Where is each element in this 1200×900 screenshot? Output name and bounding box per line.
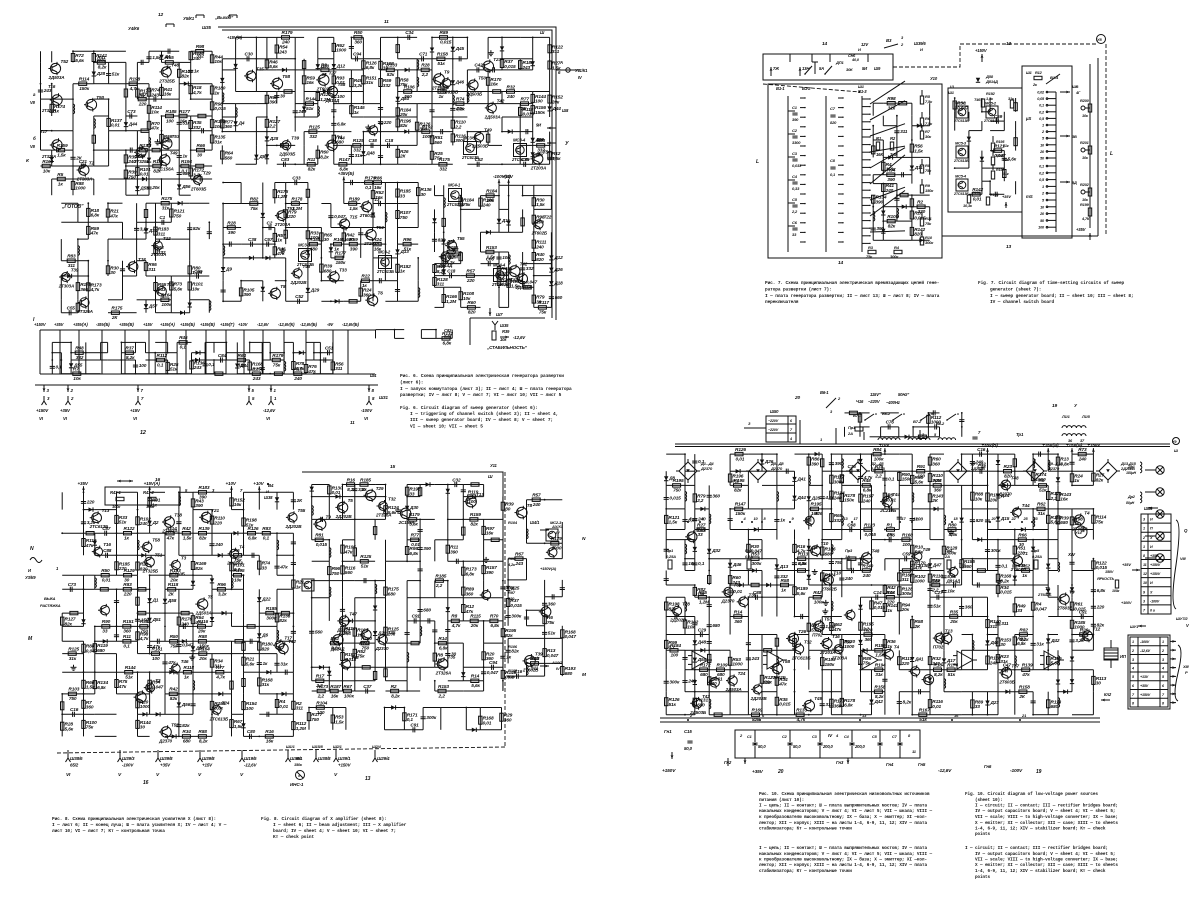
svg-text:R35: R35 — [950, 609, 959, 615]
svg-text:4,7к: 4,7к — [215, 675, 225, 681]
svg-text:2Т602Б: 2Т602Б — [1037, 592, 1052, 597]
svg-text:33: 33 — [698, 532, 704, 538]
svg-text:75к: 75к — [463, 202, 471, 208]
svg-text:6,8к: 6,8к — [490, 623, 499, 629]
svg-text:2,2: 2,2 — [438, 693, 446, 699]
svg-text:680: 680 — [717, 672, 725, 678]
svg-text:2А: 2А — [847, 431, 853, 436]
svg-text:1к: 1к — [58, 181, 64, 187]
svg-text:R184: R184 — [486, 188, 497, 194]
svg-text:51к: 51к — [1039, 488, 1047, 494]
svg-text:C30: C30 — [245, 52, 254, 57]
svg-text:R118: R118 — [168, 582, 179, 588]
svg-text:14: 14 — [822, 41, 828, 47]
svg-text:2Д202В: 2Д202В — [290, 280, 308, 285]
svg-text:Т22: Т22 — [544, 215, 552, 220]
svg-text:0,01: 0,01 — [102, 578, 111, 584]
svg-text:МС3-3: МС3-3 — [463, 136, 476, 141]
svg-text:100: 100 — [902, 542, 910, 548]
svg-text:51к: 51к — [933, 603, 941, 609]
svg-text:R55: R55 — [165, 55, 174, 61]
svg-text:2Д503Б: 2Д503Б — [465, 91, 483, 96]
svg-text:51к: 51к — [306, 106, 314, 112]
svg-text:C21: C21 — [79, 159, 88, 164]
svg-text:30: 30 — [421, 192, 427, 198]
svg-text:R194: R194 — [875, 663, 886, 669]
svg-text:R195: R195 — [734, 478, 745, 484]
svg-text:1к: 1к — [1074, 478, 1080, 484]
svg-text:0,015: 0,015 — [214, 106, 226, 112]
svg-text:1,5к: 1,5к — [552, 156, 561, 162]
svg-text:-100V: -100V — [1010, 768, 1023, 774]
svg-text:4: 4 — [789, 437, 792, 441]
svg-text:1,2М: 1,2М — [446, 299, 457, 305]
svg-text:R16: R16 — [294, 367, 303, 373]
svg-text:Т48: Т48 — [1011, 475, 1019, 480]
svg-text:0,1: 0,1 — [180, 345, 187, 351]
svg-text:50,0: 50,0 — [684, 746, 693, 751]
svg-text:Ш1: Ш1 — [1026, 70, 1032, 75]
svg-text:2Д503А: 2Д503А — [48, 75, 65, 80]
svg-text:40,0: 40,0 — [851, 58, 860, 62]
svg-text:100: 100 — [671, 653, 679, 659]
svg-text:10к: 10к — [43, 168, 51, 174]
svg-text:Т50: Т50 — [478, 75, 486, 80]
svg-text:240: 240 — [506, 94, 515, 100]
svg-text:R9: R9 — [321, 63, 327, 69]
svg-text:82к: 82к — [387, 72, 395, 78]
svg-text:+35V: +35V — [160, 763, 171, 768]
svg-text:C76: C76 — [886, 420, 895, 425]
svg-text:2Т603Б: 2Т603Б — [316, 86, 333, 91]
svg-text:ШУ1: ШУ1 — [1130, 624, 1138, 629]
svg-text:5,6к: 5,6к — [269, 64, 278, 70]
svg-text:332: 332 — [834, 518, 842, 524]
svg-text:Ш1/1: Ш1/1 — [286, 744, 295, 749]
svg-text:Др1: Др1 — [1127, 465, 1135, 469]
svg-text:I — лист 6; II — конец луча; Ш: I — лист 6; II — конец луча; Ш — плата у… — [52, 822, 227, 828]
svg-text:Ш39/1: Ш39/1 — [338, 756, 351, 761]
svg-text:2Д202В: 2Д202В — [335, 514, 353, 519]
svg-text:R160: R160 — [902, 532, 913, 538]
svg-text:Ш35: Ш35 — [202, 25, 211, 30]
svg-text:4: 4 — [1161, 667, 1164, 671]
svg-text:R32: R32 — [507, 84, 516, 90]
svg-text:R83: R83 — [933, 478, 942, 484]
svg-text:R59: R59 — [349, 237, 358, 243]
svg-text:R6: R6 — [1039, 478, 1045, 484]
svg-text:R42: R42 — [182, 526, 191, 532]
svg-text:C52: C52 — [295, 294, 304, 299]
svg-text:Т53: Т53 — [172, 134, 180, 139]
svg-text:16к: 16к — [266, 739, 274, 745]
svg-text:1000: 1000 — [140, 704, 151, 710]
svg-text:generator (sheet 7):: generator (sheet 7): — [990, 286, 1041, 292]
svg-text:51к: 51к — [112, 72, 120, 78]
svg-text:C91: C91 — [1079, 609, 1088, 614]
svg-text:R34: R34 — [182, 729, 191, 735]
svg-text:360: 360 — [934, 488, 942, 494]
svg-text:50Hz”: 50Hz” — [898, 392, 910, 397]
svg-text:2С156А: 2С156А — [226, 560, 243, 565]
svg-text:Д46: Д46 — [732, 562, 742, 567]
svg-text:R67: R67 — [515, 551, 524, 557]
svg-text:R125: R125 — [360, 554, 371, 560]
svg-text:R201: R201 — [1080, 140, 1089, 145]
svg-text:8,2к: 8,2к — [875, 694, 884, 700]
svg-text:10к: 10к — [947, 589, 955, 595]
svg-text:Д2370: Д2370 — [336, 627, 350, 632]
svg-text:180µН: 180µН — [1126, 471, 1136, 475]
svg-text:Т32: Т32 — [804, 639, 812, 644]
svg-text:R165: R165 — [334, 237, 345, 243]
svg-text:300к: 300к — [511, 614, 522, 620]
svg-text:16к: 16к — [1060, 497, 1068, 503]
svg-text:I — цепь; II — контакт; Ш — пл: I — цепь; II — контакт; Ш — плата выпрям… — [759, 846, 927, 851]
svg-text:Ш39/8: Ш39/8 — [160, 756, 173, 761]
svg-text:1к: 1к — [362, 283, 368, 289]
svg-text:0,02: 0,02 — [1037, 91, 1045, 95]
svg-text:ВЫКА: ВЫКА — [44, 596, 56, 601]
svg-text:1000: 1000 — [732, 662, 743, 668]
svg-text:R147: R147 — [339, 157, 350, 163]
svg-text:220: 220 — [123, 592, 132, 598]
svg-text:1,5к: 1,5к — [335, 719, 344, 725]
svg-text:IV: IV — [556, 530, 560, 535]
svg-text:82к: 82к — [734, 488, 742, 494]
svg-text:C37: C37 — [363, 684, 372, 689]
svg-text:Т39: Т39 — [71, 268, 79, 273]
svg-text:R133: R133 — [796, 708, 807, 714]
svg-text:Т2: Т2 — [89, 161, 95, 166]
svg-text:R14: R14 — [438, 636, 447, 642]
svg-text:2Т326А: 2Т326А — [375, 513, 391, 518]
svg-text:С82: С82 — [444, 328, 452, 333]
svg-text:C14: C14 — [873, 590, 882, 595]
svg-text:Д6: Д6 — [261, 633, 268, 638]
svg-text:47к: 47к — [167, 660, 176, 666]
svg-text:390: 390 — [811, 461, 819, 467]
svg-text:Ш50: Ш50 — [770, 409, 779, 414]
svg-text:Т29: Т29 — [203, 170, 211, 175]
svg-text:Т12: Т12 — [163, 236, 171, 241]
svg-text:20: 20 — [794, 395, 801, 401]
svg-text:R83: R83 — [67, 254, 76, 260]
svg-text:Т8: Т8 — [527, 503, 533, 508]
svg-text:30: 30 — [361, 487, 367, 493]
svg-text:2А: 2А — [944, 554, 950, 559]
svg-text:Т29: Т29 — [376, 486, 384, 491]
svg-text:13: 13 — [365, 776, 371, 782]
svg-text:820: 820 — [468, 310, 476, 316]
svg-text:8,2к: 8,2к — [98, 65, 107, 71]
svg-text:Д15: Д15 — [1000, 516, 1010, 521]
svg-text:390: 390 — [243, 292, 251, 298]
svg-text:Т4: Т4 — [239, 544, 245, 549]
svg-text:N: N — [30, 546, 34, 552]
svg-text:6,8к: 6,8к — [1060, 461, 1069, 467]
svg-text:Т42: Т42 — [497, 98, 505, 103]
svg-text:Т12: Т12 — [1093, 626, 1101, 631]
svg-text:100к: 100к — [422, 134, 433, 140]
svg-text:0,1: 0,1 — [157, 362, 164, 368]
svg-text:390: 390 — [486, 570, 494, 576]
svg-text:-12,6V: -12,6V — [257, 322, 270, 327]
svg-text:С1: С1 — [747, 735, 752, 739]
svg-text:Д53: Д53 — [139, 186, 149, 191]
svg-text:Т15: Т15 — [350, 215, 358, 220]
svg-text:I — плата генератора развертки: I — плата генератора развертки; II — лис… — [765, 293, 940, 299]
svg-text:к преобразователю высоковольтн: к преобразователю высоковольтному; IX — … — [759, 815, 927, 820]
svg-text:накальных конденсаторов; V — л: накальных конденсаторов; V — лист 4; VI … — [759, 852, 932, 857]
svg-text:2Т325Б: 2Т325Б — [142, 569, 159, 574]
svg-text:Д814Д: Д814Д — [985, 79, 998, 84]
svg-text:560: 560 — [434, 140, 442, 146]
svg-text:2Т326А: 2Т326А — [41, 108, 56, 113]
svg-text:ШУ7/2: ШУ7/2 — [1176, 616, 1188, 621]
svg-text:2ТС613Б: 2ТС613Б — [438, 90, 458, 95]
svg-text:C59: C59 — [902, 552, 911, 557]
svg-text:АХ/Х1: АХ/Х1 — [551, 524, 564, 529]
svg-text:Л1/1: Л1/1 — [1061, 414, 1071, 419]
svg-text:82к: 82к — [279, 618, 287, 624]
svg-text:+15V: +15V — [143, 322, 154, 327]
svg-text:-12,6V(Б): -12,6V(Б) — [300, 322, 317, 327]
svg-text:Д17: Д17 — [946, 658, 956, 663]
svg-text:R198: R198 — [129, 77, 140, 83]
svg-text:332: 332 — [309, 134, 317, 140]
svg-text:560: 560 — [404, 94, 412, 100]
svg-text:51к: 51к — [669, 702, 677, 708]
svg-text:75к: 75к — [863, 661, 871, 667]
svg-text:~220V: ~220V — [868, 399, 881, 404]
svg-text:11: 11 — [1143, 563, 1147, 567]
svg-text:2Д503А: 2Д503А — [195, 611, 212, 616]
svg-text:Д45: Д45 — [455, 46, 465, 51]
svg-text:Ш19/5: Ш19/5 — [244, 756, 257, 761]
svg-text:-100V: -100V — [361, 408, 373, 413]
svg-text:332: 332 — [526, 266, 534, 272]
svg-text:Т23: Т23 — [493, 57, 501, 62]
svg-text:Д56: Д56 — [181, 184, 191, 189]
svg-text:390: 390 — [450, 550, 458, 556]
svg-text:Т26: Т26 — [798, 629, 806, 634]
svg-text:311: 311 — [296, 706, 304, 712]
svg-text:R179: R179 — [272, 353, 283, 359]
svg-text:Т28: Т28 — [682, 601, 690, 606]
svg-text:2,2: 2,2 — [874, 474, 882, 480]
svg-text:1,5к: 1,5к — [986, 96, 994, 101]
svg-text:2,2: 2,2 — [696, 498, 704, 504]
svg-text:4,7к: 4,7к — [139, 636, 149, 642]
svg-text:2Д503А: 2Д503А — [484, 114, 501, 119]
svg-text:Т26: Т26 — [815, 511, 823, 516]
svg-text:6,8к: 6,8к — [439, 645, 448, 651]
svg-text:5,6к: 5,6к — [75, 58, 84, 64]
svg-text:+150V: +150V — [975, 48, 988, 53]
svg-text:+100V: +100V — [1121, 601, 1132, 605]
svg-text:Гн6: Гн6 — [984, 764, 992, 769]
svg-text:2Т603Б: 2Т603Б — [998, 679, 1015, 684]
svg-text:R194: R194 — [181, 159, 192, 165]
svg-text:300к: 300к — [890, 254, 899, 259]
svg-text:R105: R105 — [887, 214, 898, 220]
svg-text:200,0: 200,0 — [854, 744, 866, 749]
svg-text:0,1: 0,1 — [181, 168, 188, 174]
svg-text:Ш4: Ш4 — [370, 373, 377, 378]
svg-text:13Н: 13Н — [536, 138, 544, 143]
svg-text:+150V: +150V — [34, 322, 47, 327]
svg-text:6,8к: 6,8к — [97, 685, 106, 691]
svg-text:750: 750 — [140, 629, 148, 635]
svg-text:332: 332 — [383, 83, 391, 89]
svg-text:I — запуск коммутатора (лист 3: I — запуск коммутатора (лист 3); II — ли… — [400, 386, 572, 392]
svg-text:243: 243 — [278, 49, 287, 55]
svg-text:Д34: Д34 — [148, 228, 158, 233]
svg-text:16к: 16к — [180, 118, 188, 124]
svg-text:МС5-3: МС5-3 — [955, 141, 967, 146]
svg-text:1000: 1000 — [336, 48, 347, 54]
svg-text:2,2: 2,2 — [435, 583, 443, 589]
svg-text:R77: R77 — [216, 665, 225, 671]
svg-text:33: 33 — [262, 565, 268, 571]
svg-text:R58: R58 — [781, 578, 790, 584]
svg-text:R191: R191 — [972, 190, 981, 195]
svg-text:C48: C48 — [977, 464, 986, 469]
svg-text:16к: 16к — [234, 502, 242, 508]
svg-text:+15V(A): +15V(A) — [1066, 443, 1083, 448]
svg-text:2Т303А: 2Т303А — [150, 252, 166, 257]
svg-text:C16: C16 — [70, 707, 79, 712]
svg-text:-12,6V: -12,6V — [263, 408, 276, 413]
svg-text:82к: 82к — [199, 536, 207, 542]
svg-text:2Т203А: 2Т203А — [274, 222, 290, 227]
svg-text:Т4: Т4 — [894, 645, 900, 650]
svg-text:2Т303А: 2Т303А — [161, 529, 177, 534]
svg-text:1000: 1000 — [931, 420, 942, 426]
svg-text:0,1: 0,1 — [123, 644, 130, 650]
svg-text:8,2к: 8,2к — [1020, 637, 1029, 643]
svg-text:+35V: +35V — [1150, 554, 1159, 558]
svg-text:R39: R39 — [502, 329, 510, 334]
svg-text:390: 390 — [350, 246, 358, 252]
svg-text:Т8: Т8 — [280, 284, 286, 289]
svg-text:0,015: 0,015 — [865, 532, 877, 538]
svg-text:1-4, 6-9, 11, 12; XIV — stabil: 1-4, 6-9, 11, 12; XIV — stabilizer board… — [975, 869, 1106, 874]
svg-text:C94: C94 — [353, 52, 362, 57]
svg-text:220: 220 — [86, 500, 95, 506]
svg-text:R175: R175 — [161, 196, 172, 202]
svg-text:0,1: 0,1 — [698, 561, 705, 567]
svg-text:А1/Х2: А1/Х2 — [551, 660, 563, 665]
svg-text:332: 332 — [353, 148, 361, 154]
svg-text:Т5: Т5 — [348, 498, 354, 503]
svg-text:2Д503А: 2Д503А — [515, 285, 532, 290]
svg-text:C18: C18 — [447, 268, 456, 273]
svg-text:Ш39/3: Ш39/3 — [122, 756, 135, 761]
svg-text:47к: 47к — [833, 627, 842, 633]
svg-text:-12,6V: -12,6V — [938, 768, 952, 774]
svg-text:51к: 51к — [404, 246, 412, 252]
svg-text:240: 240 — [844, 576, 853, 582]
svg-text:У14: У14 — [1075, 530, 1082, 535]
svg-text:R187: R187 — [330, 684, 341, 690]
svg-text:2Д503Б: 2Д503Б — [278, 152, 296, 157]
svg-text:300к: 300к — [426, 715, 437, 721]
svg-text:Д48: Д48 — [365, 151, 375, 156]
svg-text:82к: 82к — [308, 167, 316, 173]
svg-text:C47: C47 — [1003, 663, 1012, 668]
svg-text:243: 243 — [193, 365, 202, 371]
svg-text:ЯРКОСТЬ: ЯРКОСТЬ — [1096, 577, 1115, 581]
svg-text:X — emitter; XI — collector; X: X — emitter; XI — collector; XII — case;… — [975, 863, 1118, 868]
svg-text:Т58: Т58 — [451, 247, 459, 252]
svg-text:1000: 1000 — [844, 644, 855, 650]
svg-text:33: 33 — [975, 704, 981, 710]
svg-text:2Т303А: 2Т303А — [58, 284, 74, 289]
svg-text:8,2к: 8,2к — [347, 487, 356, 493]
svg-text:R14: R14 — [471, 674, 480, 680]
svg-text:R39: R39 — [932, 578, 941, 584]
svg-text:Рис. 10. Схема принципиальная: Рис. 10. Схема принципиальная электричес… — [759, 792, 930, 797]
svg-text:R66: R66 — [1018, 532, 1027, 538]
svg-text:R70: R70 — [490, 614, 499, 620]
svg-text:R83: R83 — [123, 582, 132, 588]
svg-text:R42: R42 — [169, 687, 178, 693]
svg-text:31к: 31к — [1036, 642, 1044, 648]
svg-text:РАСТЯЖКА: РАСТЯЖКА — [40, 603, 61, 608]
svg-text:Т55: Т55 — [298, 508, 306, 513]
svg-text:115V”: 115V” — [870, 392, 882, 397]
svg-text:ИНС-1: ИНС-1 — [290, 782, 304, 787]
svg-text:390: 390 — [423, 546, 431, 552]
svg-text:R144: R144 — [306, 96, 317, 102]
svg-text:R202: R202 — [1080, 182, 1090, 187]
svg-text:31к: 31к — [888, 106, 896, 112]
svg-text:10к: 10к — [192, 286, 200, 292]
svg-text:0,1: 0,1 — [263, 536, 270, 542]
svg-text:33: 33 — [400, 193, 406, 199]
svg-text:360: 360 — [548, 601, 556, 607]
svg-text:2Д202В: 2Д202В — [285, 524, 303, 529]
svg-text:R189: R189 — [875, 643, 886, 649]
svg-text:Ш: Ш — [1174, 448, 1178, 453]
svg-text:Т13: Т13 — [372, 197, 380, 202]
svg-text:0,01: 0,01 — [444, 334, 452, 339]
svg-text:В1-3: В1-3 — [858, 89, 867, 94]
svg-text:332: 332 — [439, 167, 447, 173]
svg-text:C69: C69 — [194, 269, 203, 274]
svg-text:R37: R37 — [125, 346, 134, 352]
svg-text:У11: У11 — [490, 463, 498, 468]
svg-text:Т21: Т21 — [211, 508, 219, 513]
svg-text:R11: R11 — [307, 157, 315, 163]
svg-text:R78: R78 — [875, 464, 884, 470]
svg-text:I — sheet 6; II — beam adjustm: I — sheet 6; II — beam adjustment; III —… — [273, 822, 407, 828]
svg-text:100: 100 — [535, 99, 543, 105]
svg-text:R88: R88 — [198, 729, 207, 735]
svg-text:R84: R84 — [873, 447, 882, 453]
svg-text:б: б — [33, 136, 36, 141]
svg-text:развертки; IV — лист 8; V — ли: развертки; IV — лист 8; V — лист 7; VI —… — [400, 392, 562, 398]
svg-text:20к: 20к — [551, 99, 560, 105]
svg-text:Гн1: Гн1 — [664, 729, 672, 734]
svg-text:лектор; XII — корпус; XIII — н: лектор; XII — корпус; XIII — на листы 1-… — [759, 863, 927, 868]
svg-text:300к: 300к — [752, 561, 763, 567]
svg-text:R73: R73 — [1078, 447, 1087, 453]
svg-text:Т32: Т32 — [388, 497, 396, 502]
svg-text:750: 750 — [174, 213, 182, 219]
